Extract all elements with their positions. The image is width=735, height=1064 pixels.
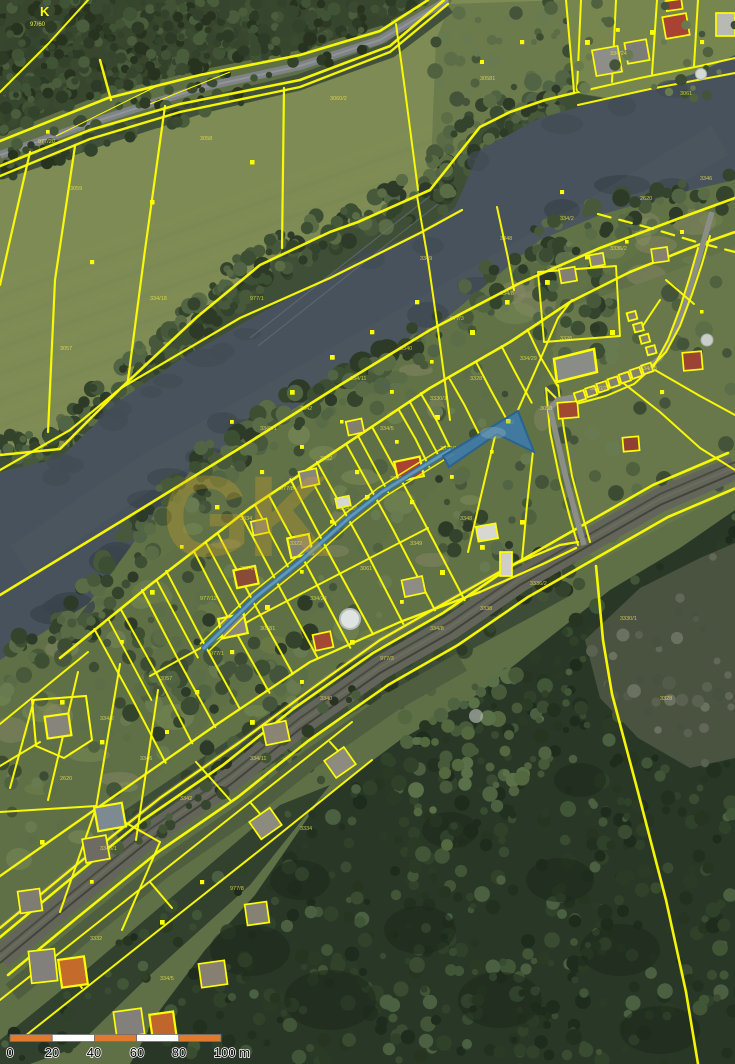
svg-text:3345/1: 3345/1 xyxy=(100,846,117,852)
svg-text:977/20: 977/20 xyxy=(38,139,55,145)
svg-text:3346: 3346 xyxy=(700,176,712,182)
svg-text:3342: 3342 xyxy=(180,796,192,802)
svg-text:60: 60 xyxy=(130,1045,144,1060)
svg-text:3342: 3342 xyxy=(300,406,312,412)
svg-text:3349: 3349 xyxy=(410,541,422,547)
svg-text:334/18: 334/18 xyxy=(150,296,167,302)
svg-text:2620: 2620 xyxy=(640,196,652,202)
svg-text:3057: 3057 xyxy=(160,676,172,682)
svg-text:3332: 3332 xyxy=(90,936,102,942)
svg-text:3340: 3340 xyxy=(400,346,412,352)
svg-text:97/60: 97/60 xyxy=(30,22,46,28)
svg-text:3345/1: 3345/1 xyxy=(260,426,277,432)
svg-text:3346: 3346 xyxy=(140,756,152,762)
svg-text:3348: 3348 xyxy=(460,516,472,522)
svg-text:3061: 3061 xyxy=(680,91,692,97)
svg-text:334/11: 334/11 xyxy=(350,376,366,382)
svg-text:334/2: 334/2 xyxy=(100,716,114,722)
svg-text:3348: 3348 xyxy=(500,236,512,242)
svg-text:334/18: 334/18 xyxy=(640,366,657,372)
svg-text:977/3: 977/3 xyxy=(380,656,394,662)
svg-text:GK: GK xyxy=(162,453,329,581)
svg-text:334/29: 334/29 xyxy=(520,356,537,362)
svg-text:3340: 3340 xyxy=(320,696,332,702)
svg-text:20: 20 xyxy=(45,1045,59,1060)
svg-text:3338: 3338 xyxy=(480,606,492,612)
svg-text:3057: 3057 xyxy=(60,346,72,352)
svg-text:334/5: 334/5 xyxy=(380,426,394,432)
svg-text:0: 0 xyxy=(6,1045,13,1060)
svg-text:977/1: 977/1 xyxy=(250,296,264,302)
svg-text:334/24: 334/24 xyxy=(610,51,627,57)
svg-text:3334: 3334 xyxy=(300,826,312,832)
svg-text:977/1: 977/1 xyxy=(210,651,224,657)
svg-text:334/2: 334/2 xyxy=(560,216,574,222)
svg-text:334/24: 334/24 xyxy=(310,596,327,602)
svg-text:3336/2: 3336/2 xyxy=(610,246,627,252)
svg-text:977/8: 977/8 xyxy=(230,886,244,892)
svg-text:334/11: 334/11 xyxy=(250,756,266,762)
svg-text:3328: 3328 xyxy=(470,376,482,382)
svg-text:80: 80 xyxy=(172,1045,186,1060)
svg-text:977/3: 977/3 xyxy=(450,316,464,322)
svg-text:334/8: 334/8 xyxy=(430,626,444,632)
svg-text:3330/1: 3330/1 xyxy=(430,396,447,402)
svg-text:3058: 3058 xyxy=(540,406,552,412)
svg-text:100 m: 100 m xyxy=(214,1045,250,1060)
svg-text:3349: 3349 xyxy=(420,256,432,262)
svg-text:30581: 30581 xyxy=(260,626,275,632)
svg-text:3330/1: 3330/1 xyxy=(620,616,637,622)
svg-text:3328: 3328 xyxy=(660,696,672,702)
svg-text:3060/2: 3060/2 xyxy=(590,386,607,392)
svg-text:40: 40 xyxy=(87,1045,101,1060)
svg-text:K: K xyxy=(40,4,50,19)
svg-text:334/5: 334/5 xyxy=(160,976,174,982)
svg-text:3336/2: 3336/2 xyxy=(530,581,547,587)
svg-text:3338: 3338 xyxy=(550,266,562,272)
svg-text:30581: 30581 xyxy=(480,76,495,82)
svg-text:3061: 3061 xyxy=(360,566,372,572)
svg-text:334/8: 334/8 xyxy=(500,291,514,297)
svg-text:2620: 2620 xyxy=(60,776,72,782)
svg-text:3326: 3326 xyxy=(560,336,572,342)
svg-text:3058: 3058 xyxy=(200,136,212,142)
svg-text:3059: 3059 xyxy=(70,186,82,192)
svg-text:3060/2: 3060/2 xyxy=(330,96,347,102)
svg-text:977/12: 977/12 xyxy=(200,596,217,602)
